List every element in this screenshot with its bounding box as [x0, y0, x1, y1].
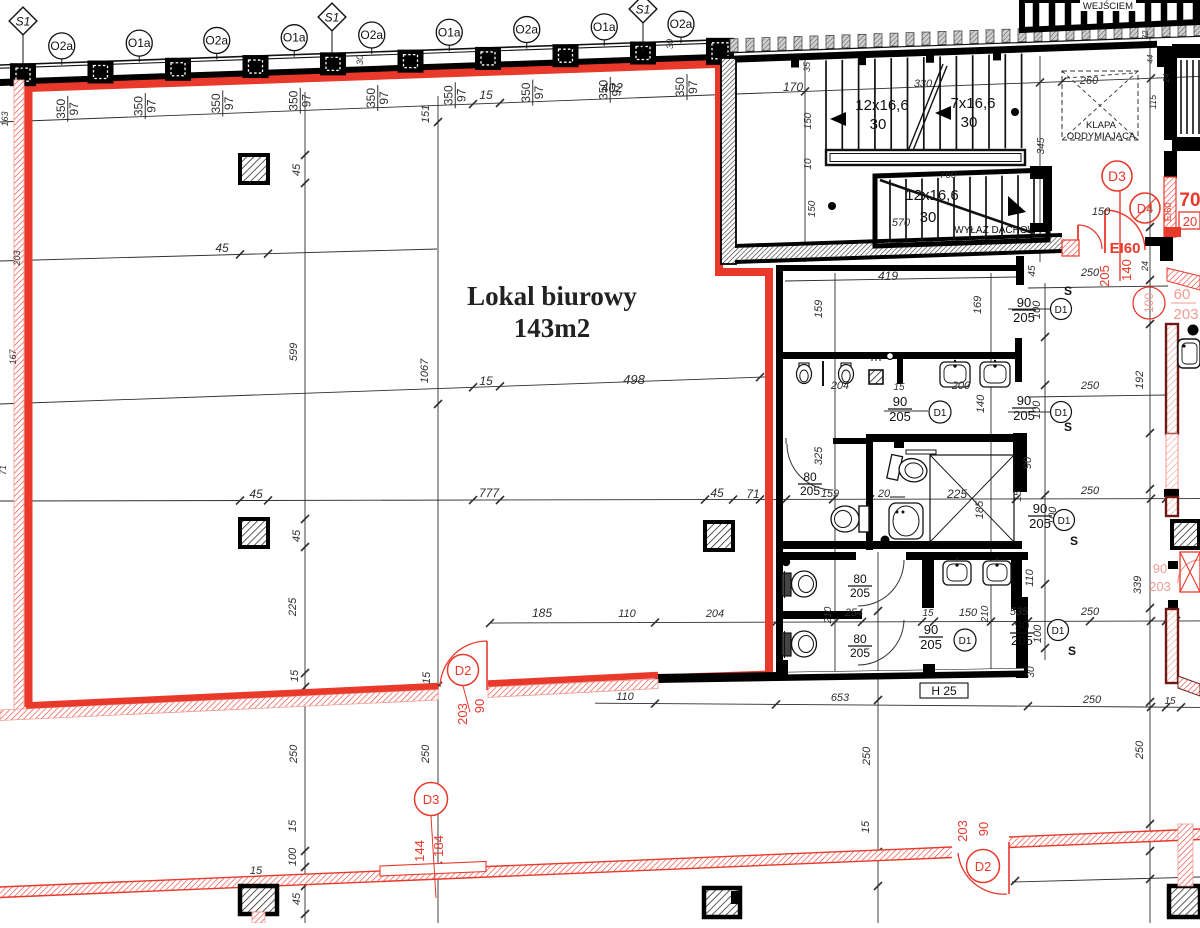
svg-text:71: 71: [746, 487, 759, 501]
svg-text:20: 20: [1183, 214, 1197, 229]
svg-text:15: 15: [479, 88, 493, 102]
svg-text:WEJŚCIEM: WEJŚCIEM: [1083, 0, 1133, 12]
svg-text:90: 90: [1017, 295, 1031, 310]
svg-text:97: 97: [532, 86, 546, 100]
svg-text:163: 163: [0, 111, 10, 126]
svg-text:D1: D1: [1055, 305, 1068, 316]
svg-text:90: 90: [1015, 618, 1029, 633]
svg-text:777: 777: [479, 486, 500, 500]
svg-text:159: 159: [813, 300, 825, 318]
svg-text:330: 330: [914, 78, 933, 90]
svg-text:30: 30: [920, 209, 937, 226]
svg-text:80: 80: [803, 470, 817, 484]
svg-text:D2: D2: [975, 859, 992, 874]
svg-text:169: 169: [972, 296, 984, 314]
svg-text:O2a: O2a: [670, 17, 693, 31]
svg-text:24: 24: [1162, 73, 1171, 83]
svg-text:653: 653: [831, 692, 850, 704]
svg-text:225: 225: [287, 597, 299, 617]
svg-text:205: 205: [889, 409, 911, 424]
svg-text:7x16,6: 7x16,6: [950, 95, 995, 112]
svg-text:EI60: EI60: [1110, 240, 1141, 257]
svg-text:97: 97: [222, 96, 236, 110]
svg-text:15: 15: [860, 820, 872, 833]
svg-text:12x16,6: 12x16,6: [905, 187, 958, 204]
svg-text:250: 250: [288, 744, 300, 764]
svg-text:110: 110: [1024, 568, 1036, 586]
svg-text:15: 15: [922, 608, 934, 619]
svg-text:EI60: EI60: [1163, 203, 1173, 222]
svg-text:339: 339: [1132, 576, 1144, 594]
svg-text:ODDYMIAJĄCA: ODDYMIAJĄCA: [1067, 131, 1136, 142]
svg-text:O1a: O1a: [438, 25, 461, 39]
svg-text:45: 45: [291, 529, 303, 542]
svg-text:30: 30: [355, 55, 365, 65]
svg-text:15: 15: [479, 374, 493, 388]
svg-text:S: S: [1064, 284, 1072, 298]
svg-text:350: 350: [364, 88, 378, 108]
svg-text:15: 15: [421, 671, 433, 684]
svg-text:15: 15: [289, 669, 301, 682]
svg-text:30: 30: [1026, 666, 1037, 678]
svg-text:15: 15: [287, 819, 299, 832]
svg-text:90: 90: [1033, 501, 1047, 516]
svg-text:O1a: O1a: [128, 36, 151, 50]
svg-text:204: 204: [705, 608, 724, 620]
svg-text:35: 35: [802, 61, 812, 72]
svg-text:D1: D1: [1055, 408, 1068, 419]
svg-text:80: 80: [853, 572, 867, 586]
svg-text:97: 97: [686, 80, 700, 94]
svg-text:150: 150: [807, 200, 818, 217]
svg-text:D1: D1: [934, 408, 947, 419]
svg-text:15: 15: [250, 865, 263, 877]
svg-text:45: 45: [291, 892, 303, 905]
svg-text:70: 70: [1179, 190, 1200, 211]
svg-text:205: 205: [920, 637, 942, 652]
svg-text:254: 254: [844, 607, 863, 619]
svg-text:150: 150: [1092, 206, 1111, 218]
svg-text:225: 225: [946, 487, 967, 501]
svg-text:15: 15: [893, 382, 905, 393]
svg-text:97: 97: [144, 99, 158, 113]
svg-text:345: 345: [1036, 137, 1047, 154]
svg-text:350: 350: [209, 93, 223, 113]
svg-text:350: 350: [286, 90, 300, 110]
svg-text:12x16,6: 12x16,6: [855, 97, 908, 114]
svg-text:30: 30: [870, 116, 887, 133]
svg-text:350: 350: [673, 77, 687, 97]
svg-text:97: 97: [67, 102, 81, 116]
svg-text:200: 200: [951, 380, 971, 392]
svg-text:140: 140: [975, 394, 987, 413]
svg-text:D3: D3: [1108, 168, 1126, 184]
svg-text:350: 350: [54, 99, 68, 119]
svg-text:100: 100: [1031, 300, 1043, 319]
svg-text:100: 100: [287, 847, 299, 866]
svg-text:570: 570: [892, 217, 911, 229]
svg-text:D2: D2: [455, 663, 472, 678]
svg-text:80: 80: [853, 632, 867, 646]
svg-text:15: 15: [1164, 696, 1176, 707]
svg-text:45: 45: [1027, 265, 1038, 277]
svg-text:KLAPA: KLAPA: [1086, 120, 1117, 131]
svg-text:45: 45: [215, 241, 229, 255]
svg-text:O2a: O2a: [205, 33, 228, 47]
svg-text:S1: S1: [325, 11, 340, 25]
svg-text:260: 260: [1079, 75, 1099, 87]
svg-text:203: 203: [1149, 579, 1171, 594]
svg-text:205: 205: [1097, 265, 1112, 287]
svg-text:71: 71: [0, 465, 8, 475]
svg-text:250: 250: [1082, 694, 1102, 706]
svg-text:24: 24: [1140, 261, 1150, 272]
svg-text:10: 10: [803, 158, 814, 170]
svg-text:250: 250: [1080, 267, 1100, 279]
svg-text:210: 210: [823, 606, 834, 624]
svg-text:115: 115: [1148, 94, 1158, 109]
svg-text:170: 170: [783, 80, 803, 94]
svg-text:S: S: [1064, 420, 1072, 434]
svg-text:210: 210: [980, 605, 991, 623]
svg-text:205: 205: [850, 586, 870, 600]
svg-text:535: 535: [1010, 606, 1029, 618]
svg-text:60: 60: [1174, 286, 1191, 303]
svg-text:204: 204: [830, 380, 849, 392]
svg-text:250: 250: [420, 744, 432, 764]
svg-text:20: 20: [877, 488, 891, 500]
svg-text:90: 90: [924, 622, 938, 637]
svg-text:30: 30: [665, 39, 675, 49]
svg-text:167: 167: [8, 349, 18, 365]
svg-text:D1: D1: [1052, 626, 1065, 637]
svg-text:100: 100: [1142, 293, 1156, 313]
svg-text:143m2: 143m2: [514, 313, 591, 343]
svg-text:203: 203: [1173, 306, 1198, 323]
svg-text:O1a: O1a: [283, 31, 306, 45]
svg-text:151: 151: [420, 105, 432, 123]
svg-text:205: 205: [850, 646, 870, 660]
svg-text:100: 100: [1032, 624, 1044, 643]
svg-text:S1: S1: [636, 3, 651, 17]
svg-text:32: 32: [1141, 30, 1150, 39]
svg-text:90: 90: [976, 822, 991, 836]
svg-text:15: 15: [1013, 490, 1024, 502]
svg-text:90: 90: [1017, 393, 1031, 408]
svg-text:S: S: [1070, 534, 1078, 548]
svg-text:350: 350: [519, 82, 533, 102]
svg-text:97: 97: [299, 94, 313, 108]
svg-text:D1: D1: [959, 636, 972, 647]
svg-text:159: 159: [821, 488, 839, 500]
svg-text:45: 45: [291, 163, 303, 176]
svg-text:O1a: O1a: [593, 20, 616, 34]
svg-text:402: 402: [601, 80, 623, 95]
svg-text:350: 350: [441, 85, 455, 105]
svg-text:203: 203: [455, 703, 470, 725]
svg-text:144: 144: [412, 840, 427, 862]
svg-text:150: 150: [959, 607, 978, 619]
svg-text:250: 250: [1080, 380, 1100, 392]
svg-text:30: 30: [961, 114, 978, 131]
svg-text:44: 44: [1146, 54, 1155, 63]
svg-text:97: 97: [377, 91, 391, 105]
svg-text:1067: 1067: [419, 358, 431, 383]
svg-text:185: 185: [974, 500, 986, 519]
svg-text:599: 599: [288, 343, 300, 361]
svg-text:250: 250: [1134, 740, 1146, 760]
svg-text:D3: D3: [423, 792, 440, 807]
svg-text:S1: S1: [16, 15, 31, 29]
svg-text:205: 205: [1011, 633, 1033, 648]
svg-text:205: 205: [800, 484, 820, 498]
svg-text:760: 760: [940, 170, 957, 181]
svg-text:O2a: O2a: [360, 28, 383, 42]
svg-text:419: 419: [878, 269, 898, 283]
svg-text:250: 250: [1080, 485, 1100, 497]
svg-text:192: 192: [1134, 371, 1146, 389]
svg-text:90: 90: [893, 394, 907, 409]
svg-text:90: 90: [1022, 456, 1034, 469]
svg-text:325: 325: [813, 446, 825, 465]
svg-text:184: 184: [431, 835, 446, 857]
svg-text:90: 90: [1153, 561, 1167, 576]
svg-text:250: 250: [1080, 606, 1100, 618]
svg-text:S: S: [1068, 644, 1076, 658]
svg-text:110: 110: [618, 608, 636, 620]
svg-text:185: 185: [532, 606, 552, 620]
svg-text:H 25: H 25: [931, 684, 957, 698]
svg-text:350: 350: [131, 96, 145, 116]
svg-text:498: 498: [623, 372, 645, 387]
svg-text:250: 250: [861, 746, 873, 766]
svg-text:150: 150: [803, 112, 814, 129]
svg-text:203: 203: [955, 820, 970, 842]
svg-text:110: 110: [616, 691, 634, 703]
svg-text:Lokal biurowy: Lokal biurowy: [467, 281, 637, 311]
svg-text:D1: D1: [1058, 516, 1071, 527]
svg-text:140: 140: [1119, 259, 1134, 281]
svg-text:O2a: O2a: [515, 23, 538, 37]
svg-text:45: 45: [249, 487, 263, 501]
svg-text:90: 90: [472, 699, 487, 713]
svg-text:203: 203: [12, 250, 22, 266]
svg-text:100: 100: [1031, 400, 1043, 419]
svg-text:45: 45: [710, 486, 724, 500]
svg-text:97: 97: [454, 88, 468, 102]
svg-text:O2a: O2a: [50, 39, 73, 53]
